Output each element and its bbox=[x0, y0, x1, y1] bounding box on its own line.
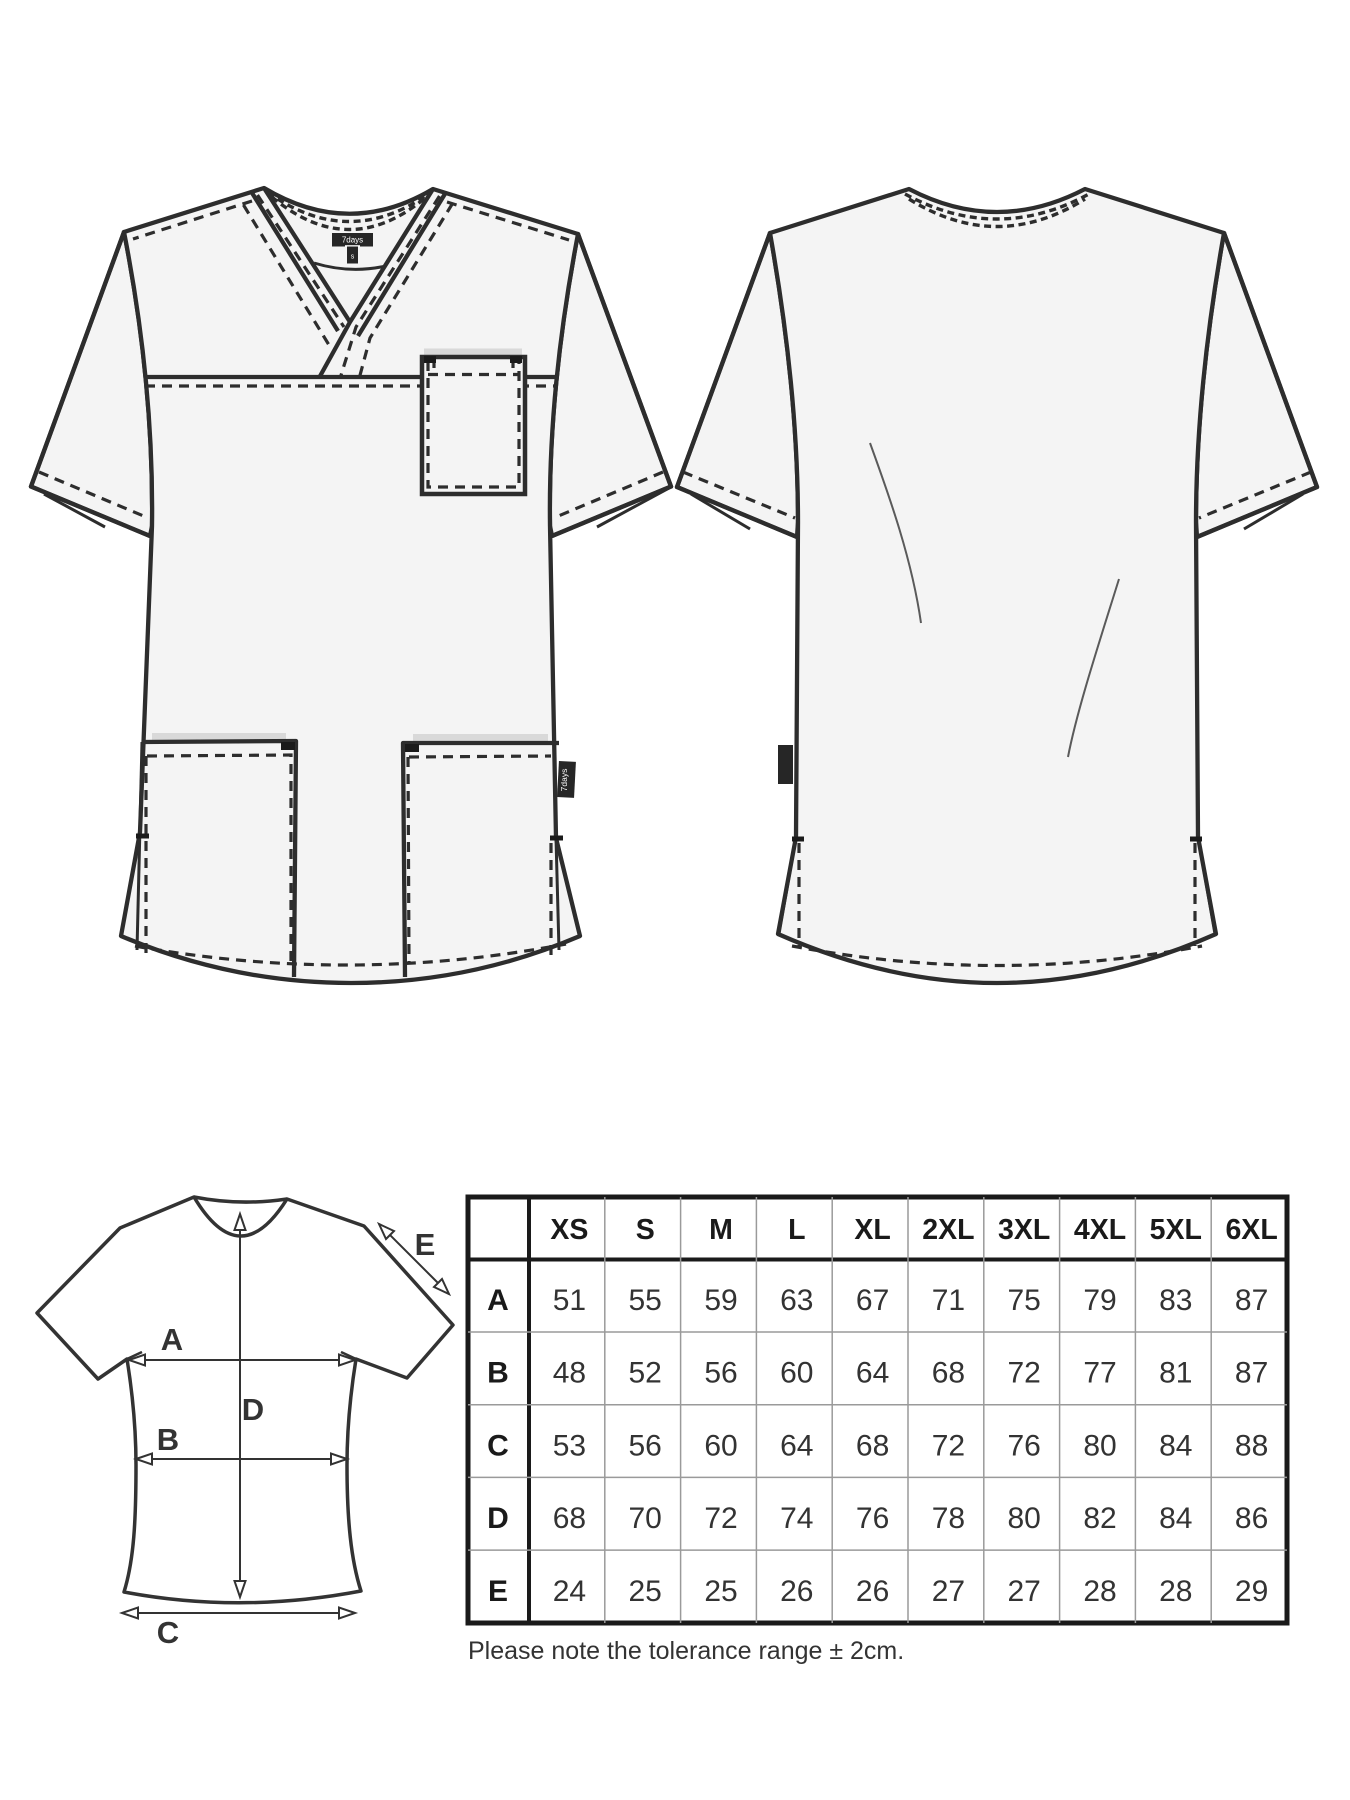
svg-text:E: E bbox=[488, 1575, 508, 1608]
svg-text:3XL: 3XL bbox=[998, 1214, 1050, 1246]
svg-text:75: 75 bbox=[1008, 1284, 1041, 1317]
svg-text:25: 25 bbox=[629, 1575, 662, 1608]
svg-text:6XL: 6XL bbox=[1225, 1214, 1277, 1246]
svg-text:28: 28 bbox=[1159, 1575, 1192, 1608]
svg-text:64: 64 bbox=[856, 1357, 889, 1390]
svg-text:56: 56 bbox=[704, 1357, 737, 1390]
svg-text:80: 80 bbox=[1083, 1429, 1116, 1462]
svg-text:S: S bbox=[636, 1214, 655, 1246]
svg-text:74: 74 bbox=[780, 1502, 813, 1535]
svg-text:D: D bbox=[242, 1392, 264, 1427]
svg-text:72: 72 bbox=[932, 1429, 965, 1462]
svg-text:68: 68 bbox=[932, 1357, 965, 1390]
svg-text:70: 70 bbox=[629, 1502, 662, 1535]
svg-text:M: M bbox=[709, 1214, 733, 1246]
svg-text:67: 67 bbox=[856, 1284, 889, 1317]
svg-text:48: 48 bbox=[553, 1357, 586, 1390]
svg-text:81: 81 bbox=[1159, 1357, 1192, 1390]
svg-text:68: 68 bbox=[856, 1429, 889, 1462]
svg-text:79: 79 bbox=[1083, 1284, 1116, 1317]
svg-text:78: 78 bbox=[932, 1502, 965, 1535]
svg-text:27: 27 bbox=[932, 1575, 965, 1608]
svg-text:Please note the tolerance rang: Please note the tolerance range ± 2cm. bbox=[468, 1637, 904, 1665]
svg-text:76: 76 bbox=[856, 1502, 889, 1535]
svg-text:5XL: 5XL bbox=[1150, 1214, 1202, 1246]
svg-text:28: 28 bbox=[1083, 1575, 1116, 1608]
svg-text:84: 84 bbox=[1159, 1429, 1192, 1462]
svg-text:86: 86 bbox=[1235, 1502, 1268, 1535]
svg-text:53: 53 bbox=[553, 1429, 586, 1462]
svg-text:87: 87 bbox=[1235, 1284, 1268, 1317]
svg-text:A: A bbox=[487, 1284, 509, 1317]
svg-text:2XL: 2XL bbox=[922, 1214, 974, 1246]
svg-text:C: C bbox=[487, 1429, 509, 1462]
svg-text:24: 24 bbox=[553, 1575, 586, 1608]
svg-text:A: A bbox=[161, 1322, 183, 1357]
svg-text:82: 82 bbox=[1083, 1502, 1116, 1535]
svg-text:64: 64 bbox=[780, 1429, 813, 1462]
svg-text:4XL: 4XL bbox=[1074, 1214, 1126, 1246]
svg-text:XS: XS bbox=[550, 1214, 588, 1246]
svg-text:C: C bbox=[157, 1615, 179, 1650]
svg-text:E: E bbox=[415, 1227, 436, 1262]
svg-text:27: 27 bbox=[1008, 1575, 1041, 1608]
svg-text:s: s bbox=[351, 254, 355, 261]
svg-text:XL: XL bbox=[854, 1214, 890, 1246]
svg-text:B: B bbox=[157, 1422, 179, 1457]
svg-text:B: B bbox=[487, 1357, 509, 1390]
svg-text:25: 25 bbox=[704, 1575, 737, 1608]
svg-text:29: 29 bbox=[1235, 1575, 1268, 1608]
svg-text:68: 68 bbox=[553, 1502, 586, 1535]
svg-text:26: 26 bbox=[780, 1575, 813, 1608]
svg-text:60: 60 bbox=[704, 1429, 737, 1462]
svg-text:56: 56 bbox=[629, 1429, 662, 1462]
svg-text:D: D bbox=[487, 1502, 509, 1535]
svg-text:76: 76 bbox=[1008, 1429, 1041, 1462]
svg-text:51: 51 bbox=[553, 1284, 586, 1317]
svg-text:26: 26 bbox=[856, 1575, 889, 1608]
svg-text:7days: 7days bbox=[342, 236, 363, 245]
svg-text:87: 87 bbox=[1235, 1357, 1268, 1390]
svg-text:L: L bbox=[788, 1214, 805, 1246]
svg-text:84: 84 bbox=[1159, 1502, 1192, 1535]
svg-text:71: 71 bbox=[932, 1284, 965, 1317]
svg-text:60: 60 bbox=[780, 1357, 813, 1390]
svg-text:80: 80 bbox=[1008, 1502, 1041, 1535]
svg-text:55: 55 bbox=[629, 1284, 662, 1317]
svg-text:83: 83 bbox=[1159, 1284, 1192, 1317]
svg-text:7days: 7days bbox=[559, 769, 569, 792]
svg-text:72: 72 bbox=[1008, 1357, 1041, 1390]
svg-text:77: 77 bbox=[1083, 1357, 1116, 1390]
svg-text:59: 59 bbox=[704, 1284, 737, 1317]
svg-text:88: 88 bbox=[1235, 1429, 1268, 1462]
svg-text:72: 72 bbox=[704, 1502, 737, 1535]
svg-text:52: 52 bbox=[629, 1357, 662, 1390]
svg-text:63: 63 bbox=[780, 1284, 813, 1317]
